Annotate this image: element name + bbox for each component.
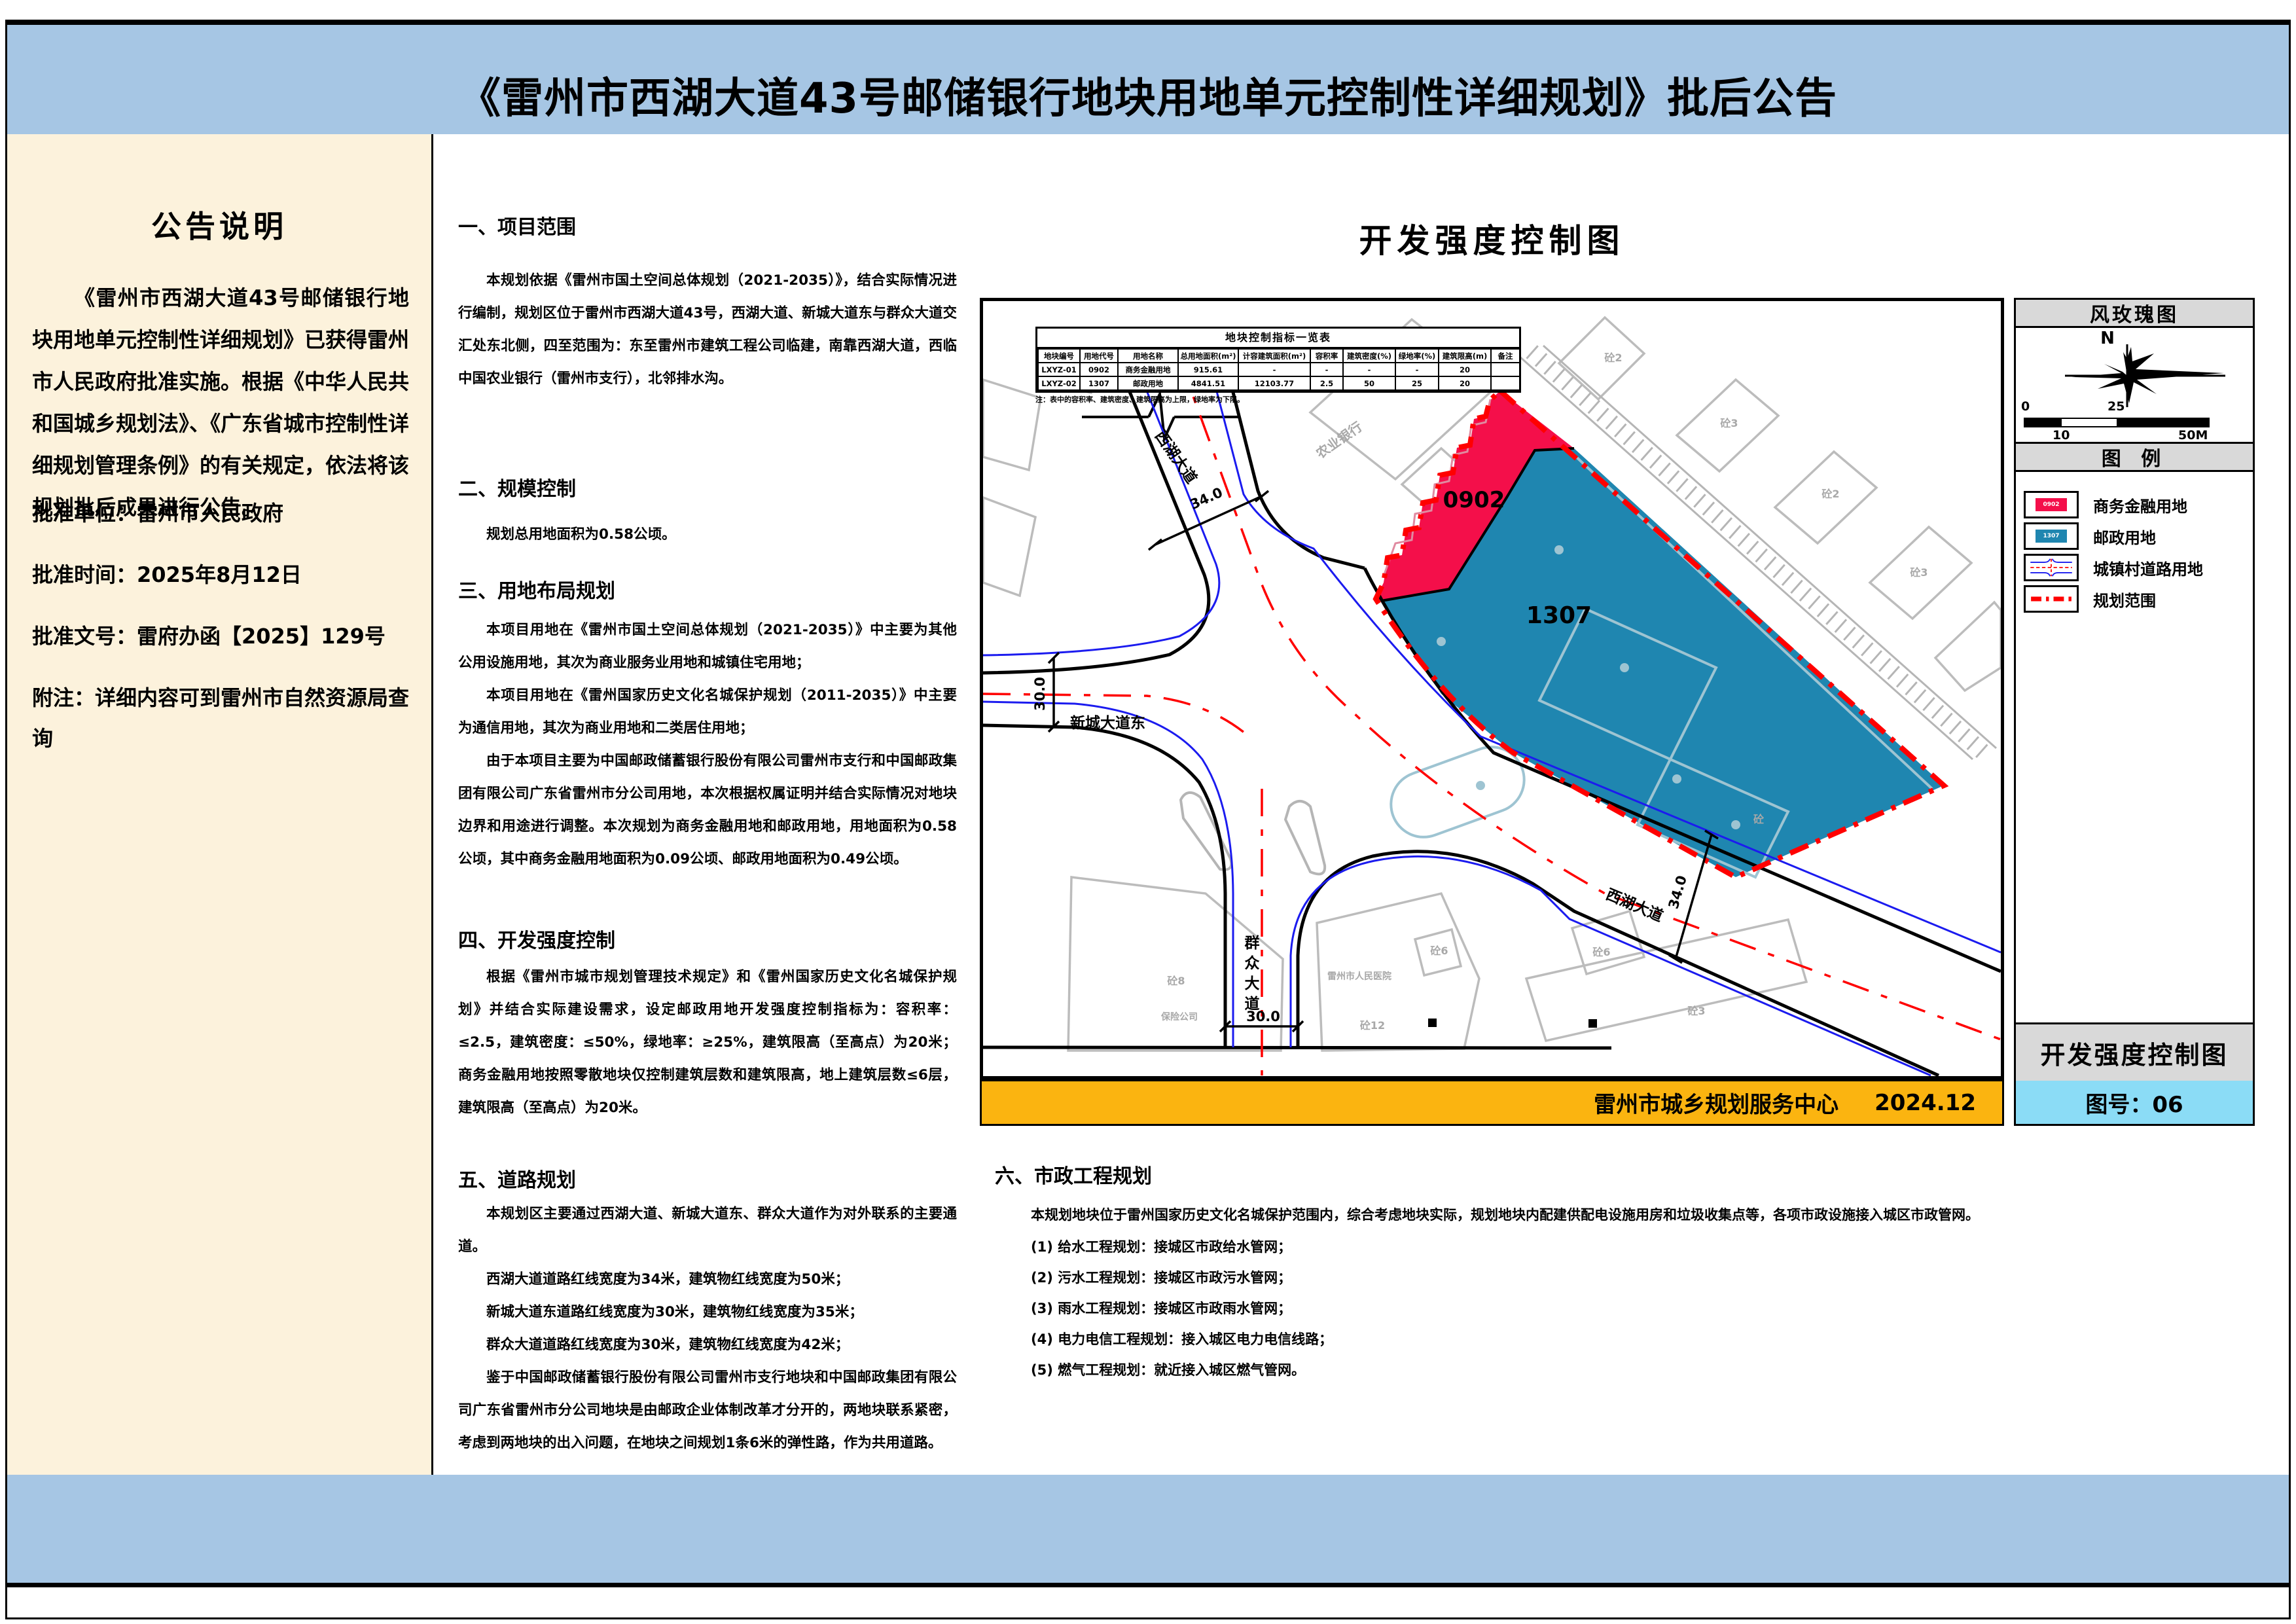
section-3-body: 本项目用地在《雷州市国土空间总体规划（2021-2035）》中主要为其他公用设施… <box>458 614 957 876</box>
legend-item-commercial: 0902 商务金融用地 <box>2024 491 2187 518</box>
windrose-header: 风玫瑰图 <box>2016 300 2253 328</box>
scale-bar <box>2024 418 2210 427</box>
planning-center-name: 雷州市城乡规划服务中心 <box>1594 1087 1839 1119</box>
section-1-heading: 一、项目范围 <box>458 211 576 240</box>
building-label: 砼2 <box>1821 488 1839 500</box>
section-5-body: 本规划区主要通过西湖大道、新城大道东、群众大道作为对外联系的主要通道。 西湖大道… <box>458 1198 957 1460</box>
building-label: 砼3 <box>1720 417 1738 429</box>
legend-label: 邮政用地 <box>2093 525 2156 548</box>
announcement-sheet: 《雷州市西湖大道43号邮储银行地块用地单元控制性详细规划》批后公告 公告说明 《… <box>0 0 2296 1624</box>
indicator-header-row: 地块编号用地代号用地名称 总用地面积(m²)计容建筑面积(m²)容积率 建筑密度… <box>1038 349 1520 363</box>
postal-swatch: 1307 <box>2024 522 2079 550</box>
section-4-heading: 四、开发强度控制 <box>458 924 615 953</box>
road-label-qunzhong: 群众大道 <box>1239 935 1261 1026</box>
building-label: 农业银行 <box>1313 418 1365 461</box>
building-label: 砼 <box>1753 813 1764 825</box>
map-title: 开发强度控制图 <box>980 215 2004 262</box>
legend-header: 图 例 <box>2016 442 2253 472</box>
notice-sidebar: 公告说明 《雷州市西湖大道43号邮储银行地块用地单元控制性详细规划》已获得雷州市… <box>7 134 433 1475</box>
utility-item: (4) 电力电信工程规划：接入城区电力电信线路； <box>1031 1324 1333 1355</box>
bottom-band-rule <box>5 1583 2291 1587</box>
dim-xincheng-east: 30.0 <box>1032 677 1048 711</box>
notice-items: 批准单位：雷州市人民政府 批准时间：2025年8月12日 批准文号：雷府办函【2… <box>32 493 412 759</box>
notice-remark: 附注：详细内容可到雷州市自然资源局查询 <box>32 677 412 759</box>
building-label: 砼6 <box>1430 945 1448 957</box>
legend-label: 城镇村道路用地 <box>2093 556 2203 579</box>
section-1-body: 本规划依据《雷州市国土空间总体规划（2021-2035）》，结合实际情况进行编制… <box>458 264 957 395</box>
building-label: 砼6 <box>1592 946 1610 958</box>
section-6-heading: 六、市政工程规划 <box>995 1160 1152 1189</box>
sheet-number-band: 图号：06 <box>2016 1081 2253 1124</box>
bottom-band <box>7 1475 2289 1583</box>
boundary-swatch-icon <box>2028 589 2075 609</box>
section-2-heading: 二、规模控制 <box>458 473 576 501</box>
indicator-table-title: 地块控制指标一览表 <box>1037 329 1519 348</box>
top-rule <box>5 20 2291 25</box>
building-label: 砼3 <box>1687 1005 1705 1017</box>
section-3-heading: 三、用地布局规划 <box>458 575 615 604</box>
section-2-body: 规划总用地面积为0.58公顷。 <box>458 518 957 551</box>
road-swatch <box>2024 554 2079 581</box>
notice-paragraph: 《雷州市西湖大道43号邮储银行地块用地单元控制性详细规划》已获得雷州市人民政府批… <box>32 277 409 528</box>
utility-item: (1) 给水工程规划：接城区市政给水管网； <box>1031 1232 1333 1263</box>
approval-number: 批准文号：雷府办函【2025】129号 <box>32 616 412 657</box>
postal-chip: 1307 <box>2036 530 2067 543</box>
sheet-title-band: 开发强度控制图 <box>2016 1022 2253 1083</box>
map-frame: 0902 1307 西湖大道 新城大道东 西湖大道 34.0 30.0 30.0… <box>980 298 2004 1079</box>
road-label-xincheng-east: 新城大道东 <box>1070 714 1145 732</box>
legend-title: 图 例 <box>2102 442 2167 471</box>
section-4-body: 根据《雷州市城市规划管理技术规定》和《雷州国家历史文化名城保护规划》并结合实际建… <box>458 961 957 1125</box>
parcel-1307-label: 1307 <box>1526 602 1592 629</box>
windrose-icon <box>2036 343 2232 408</box>
indicator-table-note: 注：表中的容积率、建筑密度、建筑限高为上限，绿地率为下限。 <box>1035 394 1521 405</box>
scale-25: 25 <box>2108 399 2125 414</box>
dim-xihu-southeast: 34.0 <box>1666 874 1690 911</box>
road-label-xihu-north: 西湖大道 <box>1151 427 1200 487</box>
legend-item-road: 城镇村道路用地 <box>2024 554 2203 581</box>
dim-xihu-north: 34.0 <box>1188 484 1225 513</box>
notice-title: 公告说明 <box>7 203 431 246</box>
sheet-title: 开发强度控制图 <box>2040 1035 2228 1071</box>
building-label: 雷州市人民医院 <box>1327 971 1391 982</box>
road-swatch-icon <box>2028 558 2075 577</box>
building-label: 保险公司 <box>1160 1011 1198 1022</box>
commercial-swatch: 0902 <box>2024 491 2079 518</box>
scale-50m: 50M <box>2178 428 2208 442</box>
building-label: 砼12 <box>1360 1019 1385 1032</box>
scale-10: 10 <box>2053 428 2070 442</box>
scale-0: 0 <box>2021 399 2030 414</box>
page-border-right <box>2289 25 2291 1619</box>
legend-panel: 风玫瑰图 N 0 25 10 50M 图 例 0902 商务金融用地 130 <box>2014 298 2255 1126</box>
table-row: LXYZ-010902商务金融用地 915.61-- --20 <box>1038 363 1520 376</box>
approval-date: 批准时间：2025年8月12日 <box>32 554 412 595</box>
sheet-number: 图号：06 <box>2085 1087 2183 1119</box>
utility-item: (2) 污水工程规划：接城区市政污水管网； <box>1031 1263 1333 1293</box>
legend-item-boundary: 规划范围 <box>2024 585 2156 613</box>
approval-unit: 批准单位：雷州市人民政府 <box>32 493 412 533</box>
section-6-intro: 本规划地块位于雷州国家历史文化名城保护范围内，综合考虑地块实际，规划地块内配建供… <box>1031 1204 1980 1224</box>
parcel-0902-label: 0902 <box>1443 487 1505 513</box>
utility-item: (3) 雨水工程规划：接城区市政雨水管网； <box>1031 1293 1333 1324</box>
commercial-chip: 0902 <box>2036 498 2067 511</box>
legend-item-postal: 1307 邮政用地 <box>2024 522 2156 550</box>
title-band: 《雷州市西湖大道43号邮储银行地块用地单元控制性详细规划》批后公告 <box>7 25 2289 134</box>
building-label: 砼8 <box>1167 975 1185 987</box>
map-footer-bar: 雷州市城乡规划服务中心 2024.12 <box>980 1079 2004 1126</box>
footer-date: 2024.12 <box>1874 1090 1976 1116</box>
road-label-xihu-southeast: 西湖大道 <box>1604 886 1666 926</box>
windrose-title: 风玫瑰图 <box>2090 298 2179 327</box>
legend-label: 规划范围 <box>2093 588 2156 611</box>
building-label: 砼3 <box>1910 566 1928 579</box>
boundary-swatch <box>2024 585 2079 613</box>
building-label: 砼2 <box>1604 352 1622 364</box>
page-title: 《雷州市西湖大道43号邮储银行地块用地单元控制性详细规划》批后公告 <box>459 65 1837 125</box>
section-5-heading: 五、道路规划 <box>458 1164 576 1193</box>
page-border-bottom <box>5 1617 2291 1619</box>
legend-label: 商务金融用地 <box>2093 494 2187 516</box>
utility-item: (5) 燃气工程规划：就近接入城区燃气管网。 <box>1031 1355 1333 1386</box>
parcel-indicator-table: 地块控制指标一览表 地块编号用地代号用地名称 总用地面积(m²)计容建筑面积(m… <box>1035 327 1521 405</box>
section-6-items: (1) 给水工程规划：接城区市政给水管网； (2) 污水工程规划：接城区市政污水… <box>1031 1232 1333 1386</box>
plan-drawing: 0902 1307 西湖大道 新城大道东 西湖大道 34.0 30.0 30.0… <box>983 301 2001 1076</box>
table-row: LXYZ-021307邮政用地 4841.5112103.772.5 50252… <box>1038 376 1520 390</box>
